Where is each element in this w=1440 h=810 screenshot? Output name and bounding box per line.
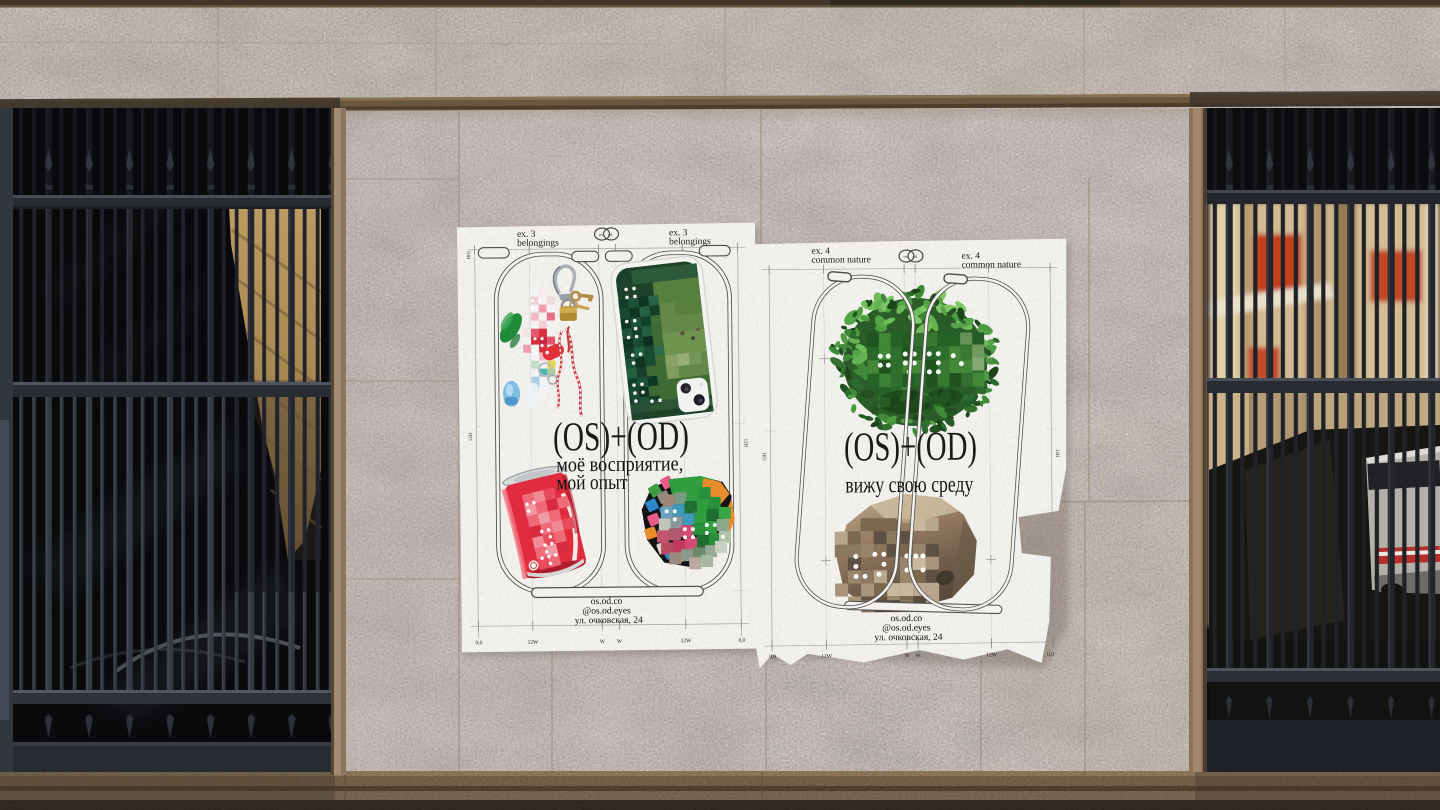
svg-text:0,0: 0,0 [475, 640, 482, 646]
svg-text:ул. очковская, 24: ул. очковская, 24 [575, 616, 643, 627]
svg-text:W: W [916, 653, 922, 659]
svg-text:common nature: common nature [962, 260, 1021, 270]
svg-text:12W: 12W [528, 640, 540, 646]
svg-text:belongings: belongings [517, 238, 559, 248]
svg-text:0,0: 0,0 [738, 638, 745, 644]
svg-text:12W: 12W [681, 638, 693, 644]
svg-text:H01: H01 [467, 250, 472, 259]
svg-text:od: od [608, 232, 613, 237]
svg-text:od: od [912, 254, 917, 259]
svg-text:0,0: 0,0 [769, 654, 776, 660]
svg-text:12W: 12W [986, 652, 998, 658]
svg-text:W: W [600, 639, 606, 645]
svg-text:12W: 12W [821, 654, 833, 660]
svg-text:(OS)+(OD): (OS)+(OD) [844, 422, 977, 469]
svg-text:12H: 12H [469, 432, 474, 441]
svg-text:os: os [599, 232, 603, 237]
svg-text:W: W [617, 639, 623, 645]
svg-text:W: W [905, 653, 911, 659]
svg-text:12H: 12H [743, 439, 748, 448]
svg-text:12H: 12H [1054, 449, 1059, 458]
svg-text:0,0: 0,0 [1047, 652, 1054, 658]
svg-text:12H: 12H [763, 452, 768, 461]
svg-text:вижу свою среду: вижу свою среду [845, 472, 974, 498]
svg-text:ул. очковская, 24: ул. очковская, 24 [874, 633, 942, 644]
svg-text:common nature: common nature [811, 255, 870, 265]
svg-text:os: os [903, 254, 907, 259]
svg-text:мой опыт: мой опыт [556, 470, 627, 495]
